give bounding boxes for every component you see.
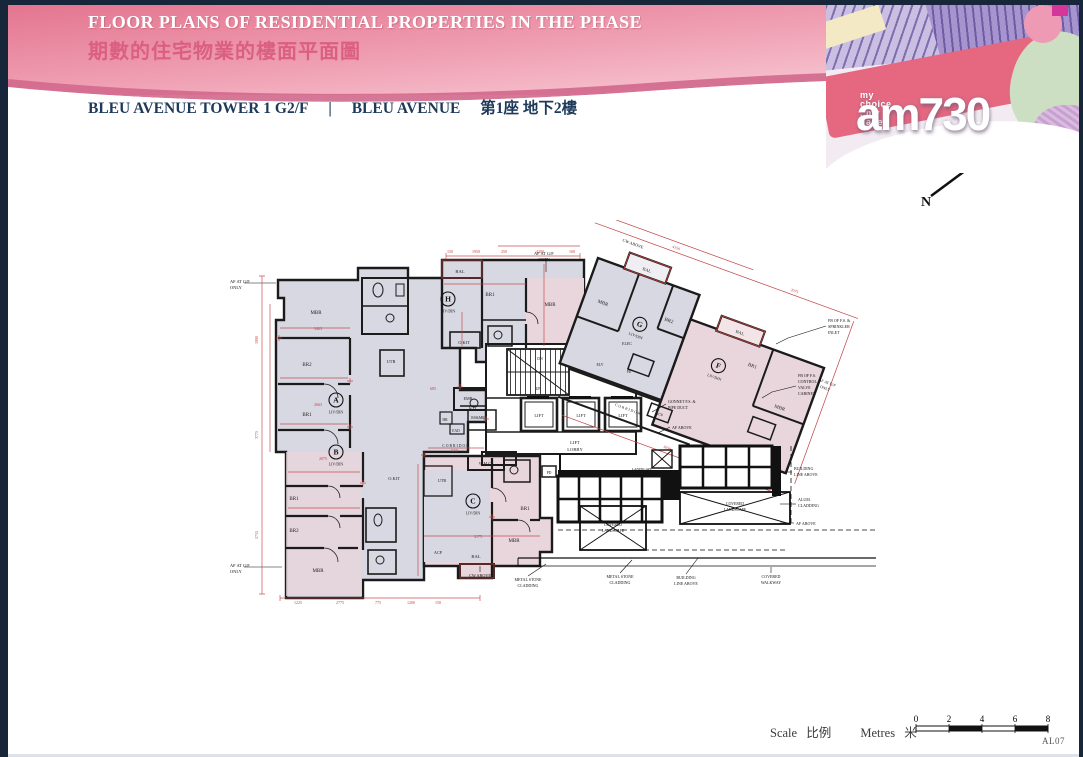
svg-text:LIV/DIN: LIV/DIN [329,463,344,467]
plan-label: 2775 [336,600,344,605]
plan-label: O.KIT [388,476,400,481]
collage-magenta-bit [1052,5,1068,16]
plan-label: ONLY [230,285,243,290]
plan-label: 2075 [319,456,327,461]
plan-label: 685 [430,386,436,391]
plan-label: MBR [312,569,324,574]
plan-label: PIPE DUCT [668,405,689,410]
plan-label: ELEC [622,341,632,346]
plan-label: ONLY [538,257,551,262]
plan-label: LIFT [618,413,628,418]
plan-label: MBR [508,539,520,544]
plan-label: RS&MR [471,416,485,420]
page-code: AL07 [1042,736,1065,746]
plan-label: 150 [435,600,441,605]
plan-label: LANDSCAPE [602,529,625,533]
plan-label: AF ABOVE [672,425,692,430]
plan-label: 775 [375,600,381,605]
svg-text:H: H [445,295,451,304]
plan-label: METAL STONE [606,574,634,579]
plan-label: MBR [544,303,556,308]
plan-label: PD [627,370,632,374]
plan-label: BR1 [289,497,299,502]
page-edge-right [1079,0,1083,757]
plan-label: COVERED [604,523,622,527]
plan-label: PD [547,471,552,475]
plan-label: AF AT G/F [230,279,250,284]
plan-label: ACP [434,550,443,555]
plan-label: LIFT [570,440,580,445]
svg-text:B: B [333,448,338,457]
plan-label: LOBBY [567,447,583,452]
plan-label: UP [536,387,541,391]
plan-label: 2075 [790,287,799,294]
scale-caption: Scale 比例 Metres 米 [770,722,917,741]
plan-label: COVERED [762,574,781,579]
page-edge-left [0,0,8,757]
plan-label: VALVE [798,385,811,390]
page-title-zh: 期數的住宅物業的樓面平面圖 [88,35,361,64]
plan-label: 3175 [474,534,482,539]
plan-label: BR2 [289,529,299,534]
svg-text:LIV/DIN: LIV/DIN [441,310,456,314]
plan-label: BR2 [302,363,312,368]
plan-label: 3775 [254,431,259,439]
plan-site-works [518,446,876,566]
subtitle-divider: | [328,100,331,117]
plan-label: GONNET F.S. & [668,399,696,404]
plan-label: SPRINKLER [828,324,850,329]
plan-label: BR1 [302,413,312,418]
page-title-en: FLOOR PLANS OF RESIDENTIAL PROPERTIES IN… [88,12,642,33]
scale-tick-8: 8 [1046,714,1051,724]
masthead-collage: my choice . my paper am730 [826,5,1083,173]
plan-label: LIFT [534,413,544,418]
plan-label: LINE ABOVE [794,472,818,477]
plan-label: BAL [455,269,464,274]
plan-label: AF AT G/F [230,563,250,568]
plan-label: LANDSCAPE [724,508,747,512]
plan-label: 5715 [254,531,259,539]
scale-bar: 0 2 4 6 8 [908,710,1058,740]
plan-label: CLADDING [798,503,819,508]
plan-label: 4200 [536,249,544,254]
plan-label: 1990 [254,336,259,344]
plan-label: 1200 [407,600,415,605]
plan-label: COVERED [726,502,744,506]
plan-label: CLADDING [610,580,631,585]
scale-label-en: Scale [770,726,797,740]
plan-label: 100 [569,249,575,254]
svg-text:LIV/DIN: LIV/DIN [466,512,481,516]
plan-label: 3463 [314,326,322,331]
plan-label: CONTROL [798,379,817,384]
plan-label: HR [442,418,448,422]
plan-label: FB OF F.S. & [828,318,851,323]
plan-label: O.KIT [458,340,470,345]
plan-label: 150 [447,249,453,254]
plan-label: LANDSCAPE [632,467,652,471]
floor-plan-subtitle: BLEU AVENUE TOWER 1 G2/F | BLEU AVENUE 第… [88,96,577,118]
plan-label: INLET [828,330,840,335]
subtitle-name-en: BLEU AVENUE [352,100,461,117]
plan-label: ONLY [230,569,243,574]
plan-label: BR1 [485,293,495,298]
plan-label: KIT [469,407,477,412]
svg-text:C: C [470,497,475,506]
subtitle-tower: BLEU AVENUE TOWER 1 G2/F [88,100,309,117]
plan-label: EAD [452,429,460,433]
plan-label: W.M.C [479,461,491,466]
page-edge-top [0,0,1083,5]
compass-north-label: N [921,195,931,210]
plan-label: EMR [463,396,472,401]
plan-label: BUILDING [794,466,813,471]
plan-label: UTR [387,359,396,364]
plan-label: 1225 [294,600,302,605]
plan-label: LINE ABOVE [674,581,698,586]
svg-text:LIV/DIN: LIV/DIN [329,411,344,415]
plan-label: BR1 [520,507,530,512]
plan-label: 1150 [450,448,458,453]
plan-label: UTR [438,478,447,483]
scale-tick-6: 6 [1013,714,1018,724]
scale-label-zh: 比例 [806,726,831,740]
plan-label: 4150 [672,244,681,251]
plan-label: 1950 [472,249,480,254]
plan-label: WALKWAY [761,580,781,585]
plan-label: FB OF F.S. [798,373,816,378]
scale-tick-0: 0 [914,714,919,724]
subtitle-name-zh: 第1座 地下2樓 [480,100,577,117]
logo-brand: am730 [856,91,989,137]
svg-text:A: A [333,396,339,405]
plan-label: DN [537,357,543,361]
plan-label: CW ABOVE [469,573,491,578]
plan-label: CABINET [798,391,816,396]
plan-label: VOID [638,473,647,477]
metres-label-en: Metres [860,726,895,740]
scale-tick-4: 4 [980,714,985,724]
plan-label: MBR [310,311,322,316]
plan-label: AF ABOVE [796,521,816,526]
floor-plan-drawing: MBRBALBR2BALBR1MBRACPACPCW ABOVEAF AT G/… [228,220,876,628]
plan-label: ELV [596,363,603,367]
plan-label: LIFT [576,413,586,418]
plan-label: BUILDING [676,575,695,580]
plan-label: 250 [501,249,507,254]
plan-label: CLADDING [518,583,539,588]
plan-label: METAL STONE [514,577,542,582]
plan-label: 2663 [314,402,322,407]
plan-label: BAL [471,554,480,559]
plan-label: ALUM. [798,497,811,502]
scale-tick-2: 2 [947,714,952,724]
